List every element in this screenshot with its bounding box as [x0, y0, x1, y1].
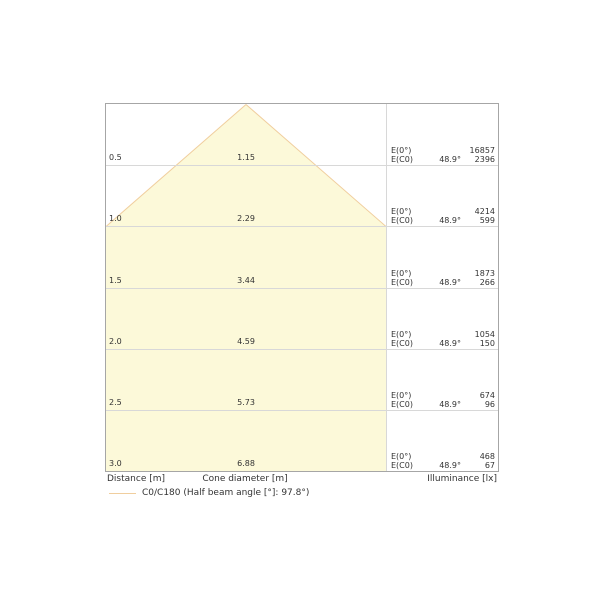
gridline-1.0m: [106, 226, 498, 227]
cone-diameter-label: 6.88: [106, 459, 386, 469]
legend-line-swatch: [109, 492, 136, 495]
cone-diameter-label: 5.73: [106, 398, 386, 408]
x-axis-label-illuminance: Illuminance [lx]: [300, 474, 497, 485]
gridline-0.5m: [106, 165, 498, 166]
illuminance-cell: E(0°) 468 E(C0) 48.9° 67: [391, 452, 495, 470]
ec0-label: E(C0): [391, 216, 425, 225]
e0-value: 1873: [461, 269, 495, 278]
spacer: [425, 330, 461, 339]
ec0-label: E(C0): [391, 278, 425, 287]
illuminance-cell: E(0°) 16857 E(C0) 48.9° 2396: [391, 146, 495, 164]
ec0-value: 599: [461, 216, 495, 225]
chart-frame: 0.5 1.15 E(0°) 16857 E(C0) 48.9° 2396 1.…: [105, 103, 499, 472]
illuminance-cell: E(0°) 4214 E(C0) 48.9° 599: [391, 207, 495, 225]
e0-label: E(0°): [391, 391, 425, 400]
spacer: [425, 207, 461, 216]
e0-label: E(0°): [391, 269, 425, 278]
e0-value: 468: [461, 452, 495, 461]
ec0-label: E(C0): [391, 400, 425, 409]
e0-value: 1054: [461, 330, 495, 339]
cone-diameter-label: 2.29: [106, 214, 386, 224]
cone-diameter-label: 1.15: [106, 153, 386, 163]
ec0-value: 96: [461, 400, 495, 409]
e0-label: E(0°): [391, 207, 425, 216]
panel-divider: [386, 104, 387, 471]
beam-angle-value: 48.9°: [425, 278, 461, 287]
ec0-label: E(C0): [391, 339, 425, 348]
legend: C0/C180 (Half beam angle [°]: 97.8°): [109, 488, 309, 499]
light-cone-diagram: 0.5 1.15 E(0°) 16857 E(C0) 48.9° 2396 1.…: [0, 0, 600, 600]
ec0-label: E(C0): [391, 461, 425, 470]
illuminance-cell: E(0°) 1873 E(C0) 48.9° 266: [391, 269, 495, 287]
cone-diameter-label: 4.59: [106, 337, 386, 347]
e0-value: 674: [461, 391, 495, 400]
ec0-label: E(C0): [391, 155, 425, 164]
e0-label: E(0°): [391, 452, 425, 461]
beam-angle-value: 48.9°: [425, 339, 461, 348]
e0-label: E(0°): [391, 330, 425, 339]
beam-angle-value: 48.9°: [425, 461, 461, 470]
e0-value: 4214: [461, 207, 495, 216]
cone-diameter-label: 3.44: [106, 276, 386, 286]
legend-label: C0/C180 (Half beam angle [°]: 97.8°): [142, 488, 309, 499]
e0-label: E(0°): [391, 146, 425, 155]
gridline-2.0m: [106, 349, 498, 350]
e0-value: 16857: [461, 146, 495, 155]
ec0-value: 266: [461, 278, 495, 287]
spacer: [425, 391, 461, 400]
ec0-value: 2396: [461, 155, 495, 164]
ec0-value: 150: [461, 339, 495, 348]
beam-angle-value: 48.9°: [425, 155, 461, 164]
beam-angle-value: 48.9°: [425, 216, 461, 225]
illuminance-cell: E(0°) 1054 E(C0) 48.9° 150: [391, 330, 495, 348]
spacer: [425, 452, 461, 461]
gridline-2.5m: [106, 410, 498, 411]
spacer: [425, 269, 461, 278]
spacer: [425, 146, 461, 155]
illuminance-cell: E(0°) 674 E(C0) 48.9° 96: [391, 391, 495, 409]
beam-angle-value: 48.9°: [425, 400, 461, 409]
ec0-value: 67: [461, 461, 495, 470]
gridline-1.5m: [106, 288, 498, 289]
